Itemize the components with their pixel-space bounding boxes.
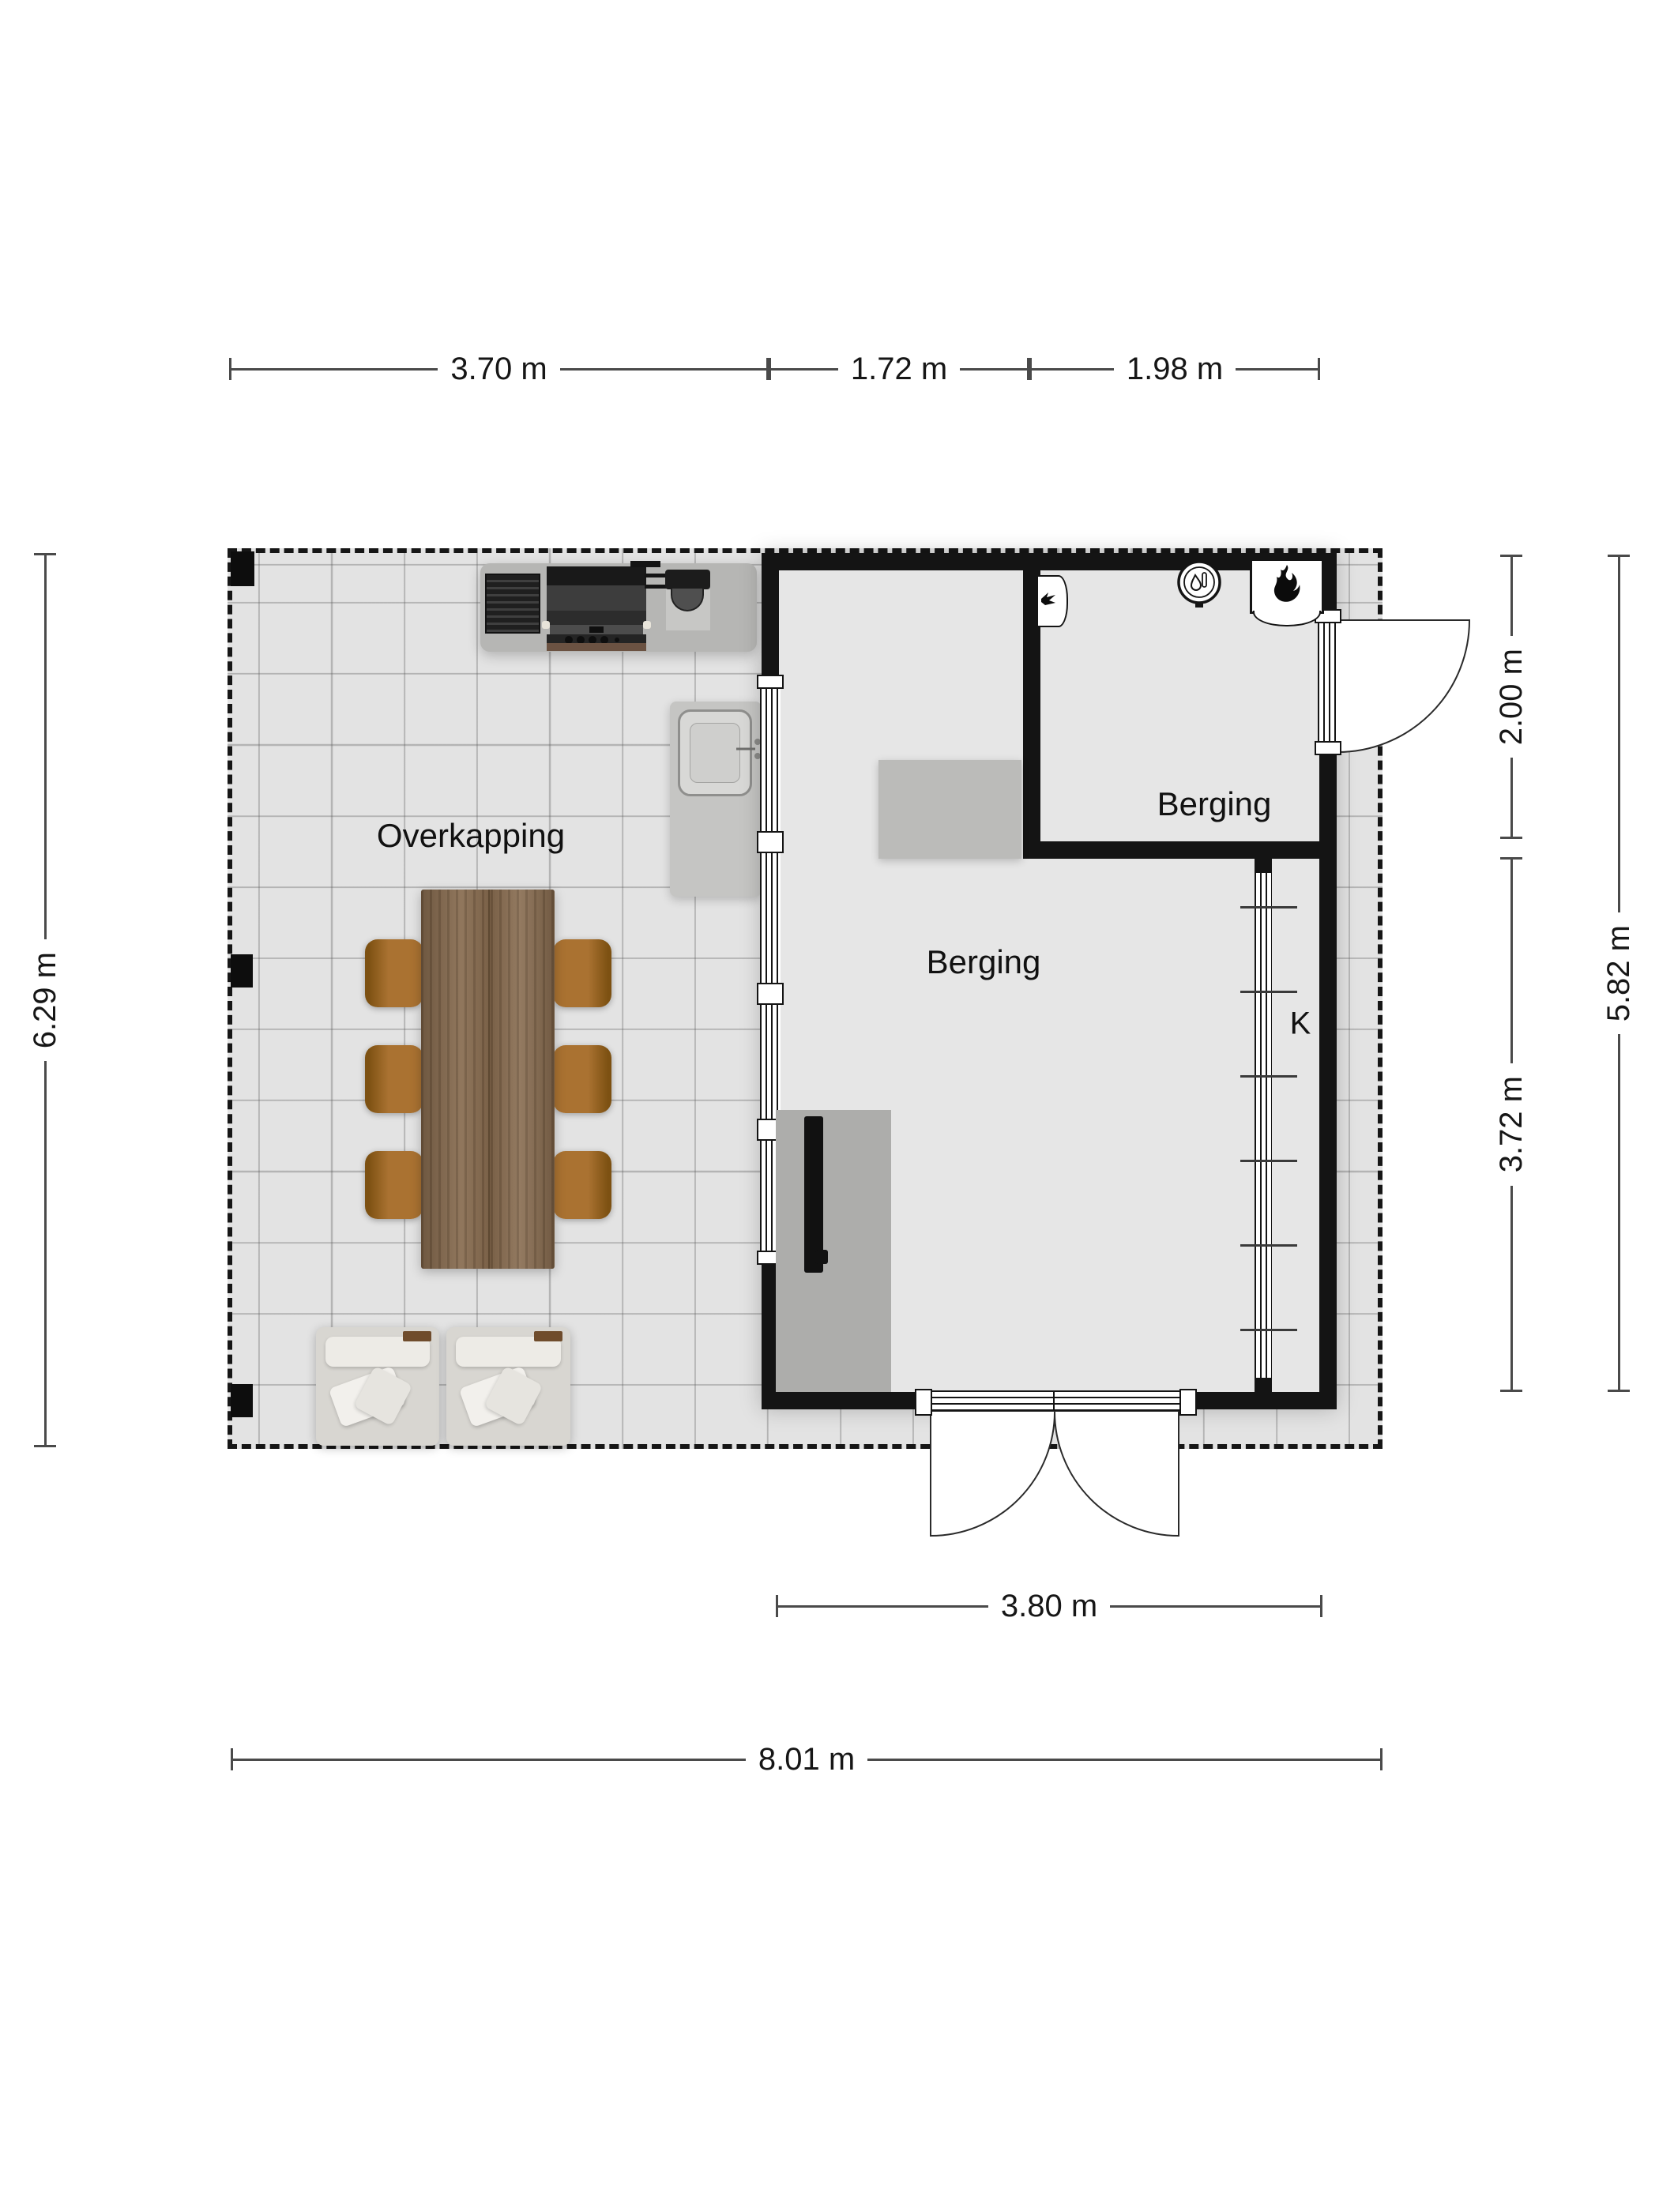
bbq-foot: [542, 621, 550, 629]
bbq-base: [547, 643, 646, 651]
dimension-label: 3.72 m: [1495, 1076, 1527, 1172]
closet-stub: [1255, 1378, 1272, 1392]
room-label-overkapping: Overkapping: [377, 817, 565, 855]
dimension-top-berging-small: 1.98 m: [1029, 357, 1320, 381]
door-jamb: [915, 1389, 932, 1416]
wall-west-upper: [762, 553, 779, 686]
armrest-wood-cap: [403, 1331, 431, 1341]
dimension-label: 3.80 m: [1001, 1590, 1097, 1622]
closet-label: K: [1290, 1006, 1311, 1042]
door-jamb: [1179, 1389, 1197, 1416]
support-post: [231, 954, 253, 987]
meter-glyph: [1040, 591, 1060, 608]
dining-chair: [365, 1045, 423, 1113]
dimension-bottom-total: 8.01 m: [231, 1747, 1382, 1771]
closet-shelf-tick: [1240, 1160, 1297, 1162]
dimension-right-building: 5.82 m: [1607, 555, 1631, 1392]
wall-berging-divider: [1023, 841, 1337, 859]
armrest-wood-cap: [534, 1331, 562, 1341]
dimension-bottom-berging: 3.80 m: [776, 1594, 1322, 1618]
dining-chair: [553, 1151, 611, 1219]
double-door-swing: [926, 1409, 1183, 1544]
bbq-foot: [643, 621, 651, 629]
glass-door: [1318, 620, 1338, 743]
room-label-berging-main: Berging: [927, 943, 1041, 981]
dimension-left-total: 6.29 m: [33, 553, 57, 1447]
bbq-handle: [630, 561, 660, 567]
closet-shelf-tick: [1240, 1075, 1297, 1078]
support-post: [231, 1384, 253, 1417]
window-mullion: [757, 831, 784, 853]
bbq-side-rod: [645, 574, 667, 577]
closet-shelf-tick: [1240, 1244, 1297, 1247]
wall-south-right: [1179, 1392, 1337, 1409]
dimension-top-berging-front: 1.72 m: [769, 357, 1029, 381]
dimension-right-berging-small: 2.00 m: [1499, 555, 1523, 839]
dimension-label: 5.82 m: [1603, 925, 1635, 1021]
cv-ketel-icon: [1250, 559, 1324, 614]
armchair: [316, 1327, 439, 1446]
dimension-label: 3.70 m: [450, 353, 547, 385]
stove-foot: [815, 1250, 828, 1264]
wall-south-left: [762, 1392, 929, 1409]
door-swing: [1335, 608, 1487, 766]
workbench: [878, 760, 1021, 859]
window-jamb: [757, 675, 784, 689]
dimension-label: 1.72 m: [851, 353, 947, 385]
window-mullion: [757, 983, 784, 1005]
dining-table: [421, 890, 555, 1269]
dimension-label: 1.98 m: [1127, 353, 1223, 385]
kamado-grill-icon: [665, 570, 710, 589]
bbq-grill-icon: [547, 566, 646, 643]
dining-chair: [553, 1045, 611, 1113]
meter-box-icon: [1036, 575, 1068, 627]
dimension-label: 2.00 m: [1495, 649, 1527, 745]
room-label-berging-small: Berging: [1157, 785, 1272, 823]
dimension-right-berging-main: 3.72 m: [1499, 857, 1523, 1392]
dining-chair: [553, 939, 611, 1007]
bbq-side-rod: [645, 585, 667, 589]
dimension-label: 6.29 m: [29, 952, 61, 1048]
closet-rack-icon: [1255, 871, 1272, 1379]
boiler-mount: [1195, 603, 1203, 608]
closet-shelf-tick: [1240, 991, 1297, 993]
dining-chair: [365, 939, 423, 1007]
door-center-meeting: [1053, 1390, 1055, 1411]
floor-mat: [776, 1110, 891, 1392]
closet-shelf-tick: [1240, 906, 1297, 908]
floorplan-page: { "plan": { "title": "Floor plan — Overk…: [0, 0, 1659, 2212]
support-post: [231, 551, 254, 586]
cv-ketel-flame-icon: [1270, 563, 1304, 608]
dimension-top-overkapping: 3.70 m: [229, 357, 769, 381]
dimension-label: 8.01 m: [758, 1744, 855, 1775]
dining-chair: [365, 1151, 423, 1219]
closet-shelf-tick: [1240, 1329, 1297, 1331]
door-jamb: [1315, 741, 1341, 755]
closet-stub: [1255, 859, 1272, 873]
bbq-grill-grate-icon: [485, 574, 540, 634]
boiler-icon: [1176, 559, 1222, 605]
armchair: [446, 1327, 570, 1446]
